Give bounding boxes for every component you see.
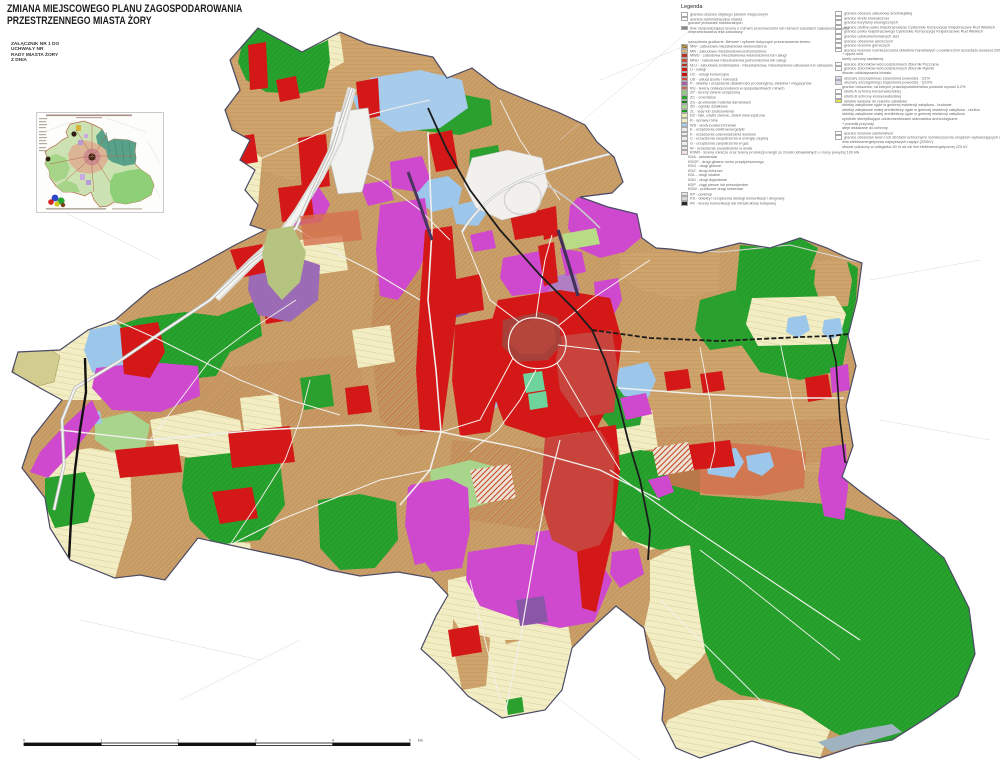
svg-text:4: 4 [332,739,334,743]
svg-text:5: 5 [409,739,411,743]
svg-text:2: 2 [177,739,179,743]
svg-text:km: km [418,739,423,743]
svg-text:0: 0 [23,739,25,743]
svg-text:3: 3 [255,739,257,743]
svg-text:1: 1 [100,739,102,743]
